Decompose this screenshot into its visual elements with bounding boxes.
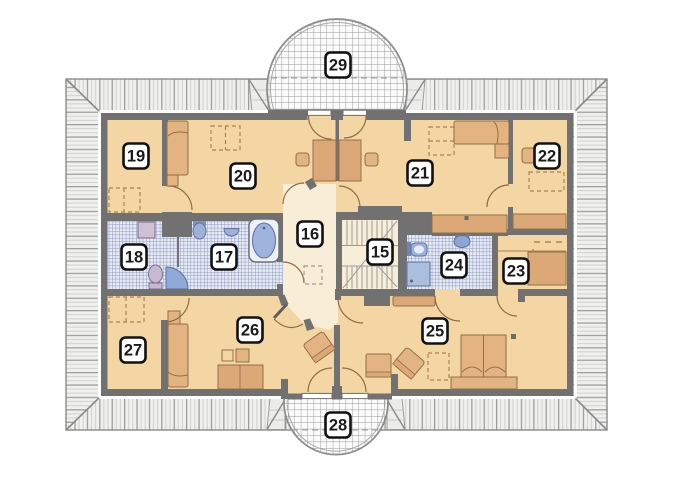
svg-text:25: 25 bbox=[426, 323, 444, 341]
svg-text:23: 23 bbox=[507, 263, 525, 281]
svg-text:29: 29 bbox=[329, 57, 347, 75]
svg-text:18: 18 bbox=[125, 249, 143, 267]
svg-text:22: 22 bbox=[538, 148, 556, 166]
svg-text:27: 27 bbox=[124, 342, 142, 360]
svg-text:20: 20 bbox=[234, 168, 252, 186]
svg-text:17: 17 bbox=[215, 249, 233, 267]
svg-text:19: 19 bbox=[127, 148, 145, 166]
svg-text:16: 16 bbox=[301, 226, 319, 244]
svg-text:21: 21 bbox=[411, 165, 429, 183]
svg-text:28: 28 bbox=[329, 417, 347, 435]
svg-text:15: 15 bbox=[371, 244, 389, 262]
svg-text:26: 26 bbox=[241, 322, 259, 340]
svg-text:24: 24 bbox=[445, 257, 464, 275]
